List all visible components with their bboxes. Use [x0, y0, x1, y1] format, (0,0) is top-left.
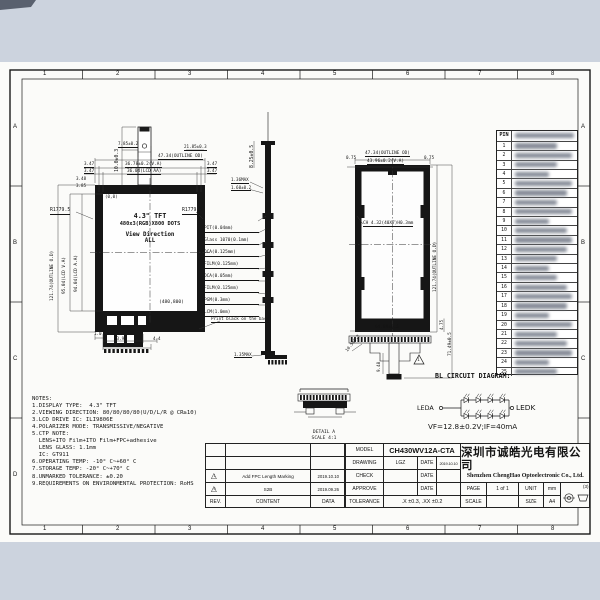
pin-signal-blurred: [512, 321, 577, 329]
note-line: 7.STORAGE TEMP: -20° C~+70° C: [32, 466, 197, 473]
zone-label: 5: [333, 526, 336, 532]
dim-label: 36.78±0.2(V.A): [125, 162, 162, 168]
zone-label: 1: [43, 526, 46, 532]
dim-label: 3.85: [76, 184, 86, 189]
pin-signal-blurred: [512, 339, 577, 347]
note-line: 2.VIEWING DIRECTION: 80/80/80/80(U/D/L/R…: [32, 410, 197, 417]
view-direction-value: ALL: [103, 238, 197, 244]
dim-label: 9.48: [377, 362, 382, 372]
pin-signal-blurred: [512, 302, 577, 310]
pin-number: 19: [497, 311, 512, 319]
dim-label: 4.75: [440, 320, 445, 330]
pin-number: 21: [497, 330, 512, 338]
pin-signal-blurred: [512, 170, 577, 178]
company-name-en: Shenzhen ChengHao Optoelectronic Co., Lt…: [467, 473, 584, 480]
pin-row: 10: [497, 225, 577, 234]
note-line: 6.OPERATING TEMP: -10° C~+60° C: [32, 459, 197, 466]
dim-label: 16.9: [118, 344, 128, 349]
dim-label: 13.9: [114, 337, 124, 342]
revision-header-rev: REV.: [206, 496, 226, 508]
detail-scale: SCALE 4:1: [300, 436, 348, 442]
backlight-chip-label: CH 4.32(40X7)H0.3mm: [363, 221, 413, 227]
unit-label: UNIT: [519, 483, 544, 496]
dim-label: 36.04(LCD AA): [127, 169, 161, 175]
dim-label: 121.74(OUTLINE O.D): [433, 242, 438, 292]
pin-signal-blurred: [512, 161, 577, 169]
revision-mark-cell: △1: [206, 470, 226, 483]
dim-label: 121.74(OUTLINE O.D): [50, 251, 55, 301]
pin-header: PIN: [497, 131, 512, 141]
pin-signal-blurred: [512, 311, 577, 319]
note-line: 3.LCD DRIVE IC: ILI9806E: [32, 417, 197, 424]
pin-row: 15: [497, 272, 577, 281]
dim-label: 3.47: [84, 162, 94, 168]
detail-a-label: DETAIL A SCALE 4:1: [300, 430, 348, 443]
pin-number: 16: [497, 283, 512, 291]
note-line: IC: GT911: [32, 452, 197, 459]
pin-signal-blurred: [512, 179, 577, 187]
pin-row: 3: [497, 160, 577, 169]
corner-radius-label: R1779.5: [50, 208, 70, 215]
dim-label: 3.48: [76, 177, 86, 182]
pin-row: 4: [497, 169, 577, 178]
zone-label: 4: [261, 526, 264, 532]
title-block: MODEL CH430WV12A-CTA 深圳市诚皓光电有限公司 Shenzhe…: [345, 443, 590, 508]
dim-label: 95.04(LCD V.A): [62, 257, 67, 294]
revision-triangle-icon: △1: [211, 472, 220, 481]
zone-label: 6: [406, 526, 409, 532]
print-note-label: Print black on the back: [211, 317, 269, 323]
dim-label: 47.34(OUTLINE OD): [158, 154, 203, 160]
pin-row: 12: [497, 244, 577, 253]
pin-row: 8: [497, 207, 577, 216]
dim-label: 47.34(OUTLINE OD): [365, 151, 410, 157]
note-line: 4.POLARIZER MODE: TRANSMISSIVE/NEGATIVE: [32, 424, 197, 431]
pin-row: 24: [497, 357, 577, 366]
dim-label: 3.47: [207, 169, 217, 175]
pin-row: 16: [497, 282, 577, 291]
pin-signal-blurred: [512, 349, 577, 357]
layer-label: PGM(0.3mm): [204, 286, 259, 298]
pin-signal-blurred: [512, 198, 577, 206]
dim-label: 0.75: [346, 156, 356, 161]
dim-label: 1.35MAX: [234, 353, 252, 359]
zone-label: 7: [478, 71, 481, 77]
zone-label: C: [581, 356, 585, 362]
drawing-value: LGZ: [384, 457, 418, 470]
scale-label: SCALE: [461, 496, 487, 508]
size-value: A4: [544, 496, 561, 508]
revision-table: △1 Add FPC Length Marking 2019.10.10 △0 …: [205, 443, 345, 508]
layer-label: Glass 1070(0.1mm): [204, 226, 259, 238]
angle-note: (3): [583, 484, 589, 489]
zone-label: 2: [116, 71, 119, 77]
pin-number: 10: [497, 226, 512, 234]
layer-label: OCA(0.05mm): [204, 262, 259, 274]
unit-value: mm: [544, 483, 561, 496]
drawing-label: DRAWING: [346, 457, 384, 470]
dim-label: 3.47: [207, 162, 217, 168]
pin-number: 8: [497, 208, 512, 216]
pin-number: 4: [497, 170, 512, 178]
zone-label: C: [13, 356, 17, 362]
dim-label: 7.85±0.2: [118, 142, 138, 148]
pin-number: 6: [497, 189, 512, 197]
zone-label: A: [581, 124, 585, 130]
note-line: 8.UNMARKED TOLERANCE: ±0.20: [32, 474, 197, 481]
zone-label: 3: [188, 71, 191, 77]
pin-number: 13: [497, 255, 512, 263]
model-label: MODEL: [346, 444, 384, 457]
check-label: CHECK: [346, 470, 384, 483]
zone-label: A: [13, 124, 17, 130]
layer-label: FILM(0.125mm): [204, 274, 259, 286]
pin-signal-blurred: [512, 245, 577, 253]
pin-signal-blurred: [512, 226, 577, 234]
dim-label: 1.36MAX: [231, 178, 249, 184]
note-line: NOTES:: [32, 396, 197, 403]
pin-row: 6: [497, 188, 577, 197]
revision-triangle-icon: △0: [211, 485, 220, 494]
pin-number: 17: [497, 292, 512, 300]
zone-label: B: [13, 240, 17, 246]
date-label: DATE: [418, 457, 437, 470]
zone-label: 8: [551, 526, 554, 532]
zone-label: 1: [43, 71, 46, 77]
dim-label: 0.75: [424, 156, 434, 161]
pin-number: 12: [497, 245, 512, 253]
note-line: LENS GLASS: 1.1mm: [32, 445, 197, 452]
layer-label: LCM(1.0mm): [204, 298, 259, 310]
company-cell: 深圳市诚皓光电有限公司 Shenzhen ChengHao Optoelectr…: [461, 444, 590, 483]
pin-signal-blurred: [512, 368, 577, 376]
pin-signal-blurred: [512, 255, 577, 263]
engineering-drawing-page: 1 2 3 4 5 6 7 8 1 2 3 4 5 6 7 8 A B C D …: [0, 0, 600, 600]
revision-mark-cell: △0: [206, 483, 226, 496]
led-cathode-label: LEDK: [516, 403, 535, 412]
lcd-resolution-label: 480x3(RGB)X800 DOTS: [103, 221, 197, 227]
zone-label: 3: [188, 526, 191, 532]
pin-number: 3: [497, 161, 512, 169]
pin-number: 7: [497, 198, 512, 206]
pin-row: 21: [497, 329, 577, 338]
size-label: SIZE: [519, 496, 544, 508]
dim-label: 1.0: [94, 332, 102, 337]
pin-row: 11: [497, 235, 577, 244]
pin-number: 24: [497, 358, 512, 366]
pixel-endpoint-label: (480,800): [159, 300, 184, 305]
pin-signal-blurred: [512, 142, 577, 150]
pin-row: 5: [497, 178, 577, 187]
pin-number: 22: [497, 339, 512, 347]
pin-number: 5: [497, 179, 512, 187]
pin-row: 20: [497, 320, 577, 329]
bl-circuit-title: BL CIRCUIT DIAGRAM:: [435, 372, 510, 380]
pin-signal-blurred: [512, 358, 577, 366]
revision-content: Add FPC Length Marking: [226, 470, 311, 483]
layer-label: OCA(0.125mm): [204, 238, 259, 250]
pixel-origin-label: (0,0): [105, 195, 118, 200]
company-name-cn: 深圳市诚皓光电有限公司: [461, 446, 590, 472]
tolerance-value: .X ±0.3, .XX ±0.2: [384, 496, 461, 508]
dim-label: 64.89±0.5: [375, 325, 399, 330]
pin-number: 14: [497, 264, 512, 272]
date-label: DATE: [418, 483, 437, 496]
lcd-face-text: 4.3" TFT 480x3(RGB)X800 DOTS View Direct…: [103, 212, 197, 244]
dim-label: 4.4: [153, 337, 161, 342]
model-value: CH430WV12A-CTA: [384, 444, 461, 457]
pin-table-header-row: PIN: [497, 131, 577, 141]
revision-date: 2019.10.10: [311, 470, 346, 483]
pin-row: 2: [497, 150, 577, 159]
pin-signal-blurred: [512, 292, 577, 300]
zone-label: 2: [116, 526, 119, 532]
pin-number: 20: [497, 321, 512, 329]
layer-label: FILM(0.125mm): [204, 250, 259, 262]
dim-label: 94.04(LCD A.A): [74, 255, 79, 292]
pin-number: 18: [497, 302, 512, 310]
pin-row: 19: [497, 310, 577, 319]
pin-number: 11: [497, 236, 512, 244]
sheet-corner-mark: [0, 0, 36, 10]
pin-signal-blurred: [512, 217, 577, 225]
corner-radius-label: R1779.5: [182, 208, 202, 215]
pin-row: 18: [497, 301, 577, 310]
pin-row: 9: [497, 216, 577, 225]
projection-symbol-cell: (3): [561, 483, 590, 508]
bl-circuit-linework: [439, 394, 513, 419]
pin-signal-blurred: [512, 151, 577, 159]
dim-label: 1.60±0.2: [231, 186, 251, 192]
revision-header-content: CONTENT: [226, 496, 311, 508]
pin-row: 23: [497, 348, 577, 357]
revision-content: S2B: [226, 483, 311, 496]
notes: NOTES:1.DISPLAY TYPE: 4.3" TFT2.VIEWING …: [32, 396, 197, 488]
pin-number: 1: [497, 142, 512, 150]
dim-label: 71.49±0.5: [448, 332, 453, 356]
dim-label: 43.96±0.2(V.A): [367, 159, 404, 165]
pin-table: PIN 1 2 3 4: [496, 130, 578, 375]
zone-label: 8: [551, 71, 554, 77]
dim-label: 10.0±0.3: [115, 149, 121, 172]
page-value: 1 of 1: [487, 483, 519, 496]
pin-signal-blurred: [512, 131, 577, 141]
zone-label: 4: [261, 71, 264, 77]
pin-signal-blurred: [512, 208, 577, 216]
zone-label: D: [13, 472, 17, 478]
pin-signal-blurred: [512, 264, 577, 272]
zone-label: 6: [406, 71, 409, 77]
zone-label: B: [581, 240, 585, 246]
layer-label: PIT(0.04mm): [204, 214, 259, 226]
revision-header-date: DATA: [311, 496, 346, 508]
pin-signal-blurred: [512, 283, 577, 291]
dim-label: 8.25±0.5: [250, 145, 256, 168]
drawing-date: 2019.10.10: [437, 457, 461, 470]
pin-signal-blurred: [512, 236, 577, 244]
pin-number: 9: [497, 217, 512, 225]
note-line: 1.DISPLAY TYPE: 4.3" TFT: [32, 403, 197, 410]
pin-row: 22: [497, 338, 577, 347]
led-anode-label: LEDA: [417, 404, 434, 412]
bl-spec-label: VF=12.8±0.2V;IF=40mA: [428, 422, 517, 431]
tolerance-label: TOLERANCE: [346, 496, 384, 508]
pin-row: 17: [497, 291, 577, 300]
note-line: 5.CTP NOTE:: [32, 431, 197, 438]
pin-number: 2: [497, 151, 512, 159]
detail-a-drawing: [294, 389, 356, 417]
approve-label: APPROVE: [346, 483, 384, 496]
pin-signal-blurred: [512, 330, 577, 338]
pin-signal-blurred: [512, 189, 577, 197]
page-label: PAGE: [461, 483, 487, 496]
pin-row: 7: [497, 197, 577, 206]
note-line: LENS+ITO Film+ITO Film+FPC+adhesive: [32, 438, 197, 445]
stackup-layer-labels: PIT(0.04mm)Glass 1070(0.1mm)OCA(0.125mm)…: [204, 214, 259, 310]
dim-label: 21.85±0.3: [184, 145, 207, 151]
dim-label: 3.47: [84, 169, 94, 175]
pin-number: 23: [497, 349, 512, 357]
pin-row: 13: [497, 254, 577, 263]
date-label: DATE: [418, 470, 437, 483]
revision-date: 2019.09.26: [311, 483, 346, 496]
zone-label: 7: [478, 526, 481, 532]
revision-mark-number: 1: [417, 358, 419, 363]
pin-number: 15: [497, 273, 512, 281]
zone-label: 5: [333, 71, 336, 77]
pin-row: 14: [497, 263, 577, 272]
pin-signal-blurred: [512, 273, 577, 281]
note-line: 9.REQUIREMENTS ON ENVIRONMENTAL PROTECTI…: [32, 481, 197, 488]
pin-row: 1: [497, 141, 577, 150]
